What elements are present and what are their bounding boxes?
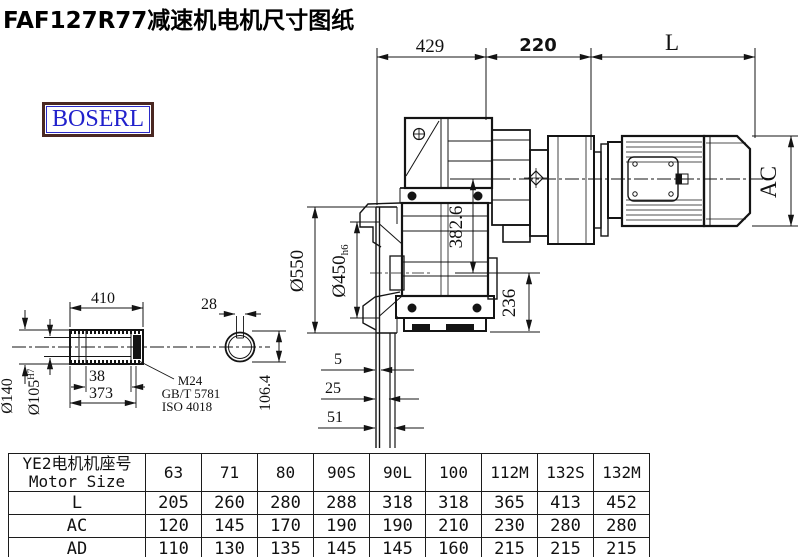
dim-220-label: 220 xyxy=(519,35,557,56)
value-cell: 280 xyxy=(594,515,650,538)
value-cell: 280 xyxy=(538,515,594,538)
value-cell: 288 xyxy=(314,492,370,515)
dim-51-label: 51 xyxy=(327,409,343,426)
column-header-100: 100 xyxy=(426,454,482,492)
value-cell: 135 xyxy=(258,538,314,557)
value-cell: 210 xyxy=(426,515,482,538)
value-cell: 318 xyxy=(370,492,426,515)
dim-L-label: L xyxy=(665,30,679,55)
value-cell: 120 xyxy=(146,515,202,538)
dim-28-label: 28 xyxy=(201,296,217,313)
column-header-80: 80 xyxy=(258,454,314,492)
value-cell: 413 xyxy=(538,492,594,515)
dim-AC-label: AC xyxy=(756,166,781,198)
dim-140-label: Ø140 xyxy=(0,378,16,414)
value-cell: 230 xyxy=(482,515,538,538)
dim-106-label: 106.4 xyxy=(257,375,274,411)
motor-size-header-cn: YE2电机机座号 xyxy=(9,455,145,473)
value-cell: 190 xyxy=(370,515,426,538)
column-header-112M: 112M xyxy=(482,454,538,492)
column-header-90L: 90L xyxy=(370,454,426,492)
motor-size-header-en: Motor Size xyxy=(9,473,145,491)
drawing-page: FAF127R77减速机电机尺寸图纸 BOSERL xyxy=(0,0,800,557)
value-cell: 215 xyxy=(538,538,594,557)
column-header-63: 63 xyxy=(146,454,202,492)
value-cell: 190 xyxy=(314,515,370,538)
dimension-lines xyxy=(315,57,791,428)
dim-105H7-label: Ø105H7 xyxy=(26,368,43,415)
value-cell: 205 xyxy=(146,492,202,515)
shaft-section-view xyxy=(219,314,286,362)
value-cell: 110 xyxy=(146,538,202,557)
motor-view xyxy=(450,136,772,226)
table-row-L: L 205 260 280 288 318 318 365 413 452 xyxy=(9,492,650,515)
dim-5-label: 5 xyxy=(334,351,342,368)
row-label-AD: AD xyxy=(9,538,146,557)
table-row-AC: AC 120 145 170 190 190 210 230 280 280 xyxy=(9,515,650,538)
dim-382-label: 382.6 xyxy=(446,206,467,249)
value-cell: 215 xyxy=(482,538,538,557)
extension-lines xyxy=(307,48,798,333)
value-cell: 170 xyxy=(258,515,314,538)
dim-236-label: 236 xyxy=(499,289,520,318)
dim-450h6-label: Ø450h6 xyxy=(329,244,351,298)
dim-450-value: Ø450 xyxy=(329,255,350,297)
value-cell: 452 xyxy=(594,492,650,515)
motor-size-table: YE2电机机座号 Motor Size 63 71 80 90S 90L 100… xyxy=(8,453,650,557)
dim-25-label: 25 xyxy=(325,380,341,397)
value-cell: 145 xyxy=(370,538,426,557)
row-label-AC: AC xyxy=(9,515,146,538)
value-cell: 260 xyxy=(202,492,258,515)
dim-38-label: 38 xyxy=(89,368,105,385)
value-cell: 145 xyxy=(314,538,370,557)
table-row-AD: AD 110 130 135 145 145 160 215 215 215 xyxy=(9,538,650,557)
drawing-linework xyxy=(12,48,798,448)
dim-429-label: 429 xyxy=(416,36,445,57)
value-cell: 318 xyxy=(426,492,482,515)
value-cell: 130 xyxy=(202,538,258,557)
value-cell: 365 xyxy=(482,492,538,515)
dim-105-value: Ø105 xyxy=(26,380,43,416)
value-cell: 215 xyxy=(594,538,650,557)
note-standard-iso: ISO 4018 xyxy=(162,399,212,414)
dim-450-tolerance: h6 xyxy=(339,244,351,256)
dim-410-label: 410 xyxy=(91,290,115,307)
dim-550-label: Ø550 xyxy=(287,250,308,292)
value-cell: 160 xyxy=(426,538,482,557)
dim-105-tolerance: H7 xyxy=(26,368,36,379)
value-cell: 145 xyxy=(202,515,258,538)
row-label-L: L xyxy=(9,492,146,515)
column-header-71: 71 xyxy=(202,454,258,492)
note-leader-line xyxy=(139,361,174,379)
value-cell: 280 xyxy=(258,492,314,515)
table-header-row: YE2电机机座号 Motor Size 63 71 80 90S 90L 100… xyxy=(9,454,650,492)
motor-size-header-cell: YE2电机机座号 Motor Size xyxy=(9,454,146,492)
dim-373-label: 373 xyxy=(89,385,113,402)
column-header-132S: 132S xyxy=(538,454,594,492)
column-header-132M: 132M xyxy=(594,454,650,492)
column-header-90S: 90S xyxy=(314,454,370,492)
